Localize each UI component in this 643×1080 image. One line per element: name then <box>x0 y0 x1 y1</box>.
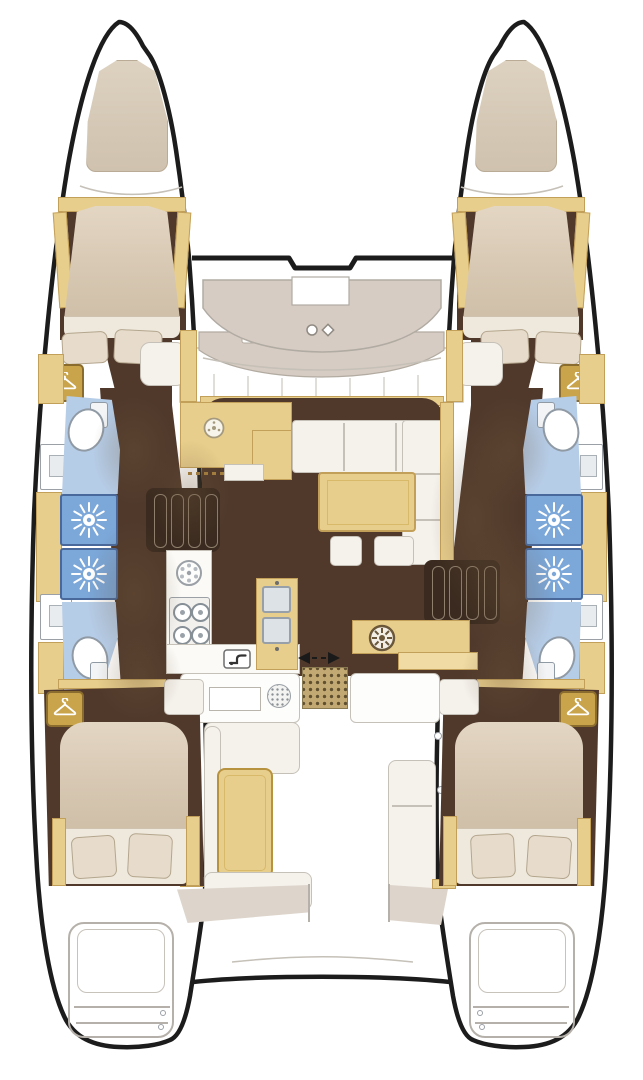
cockpit-counter-starboard <box>350 673 440 723</box>
stern-fitting <box>477 1010 483 1016</box>
faucet-icon <box>223 649 251 670</box>
step <box>466 566 479 620</box>
wardrobe-locker <box>559 691 597 727</box>
cushion-divider <box>343 423 345 471</box>
cockpit-grating <box>302 667 348 709</box>
stern-fitting <box>158 1024 164 1030</box>
forepeak-cushion-starboard <box>475 60 557 172</box>
shower-jets-icon <box>534 500 574 540</box>
aft-bench-starboard <box>390 885 448 925</box>
stern-line <box>308 884 310 922</box>
hull-cabinet <box>581 492 607 602</box>
hinge-fitting <box>434 732 442 740</box>
toilet <box>533 402 575 452</box>
stove-burner-icon <box>173 626 192 645</box>
sink-basin <box>262 617 291 644</box>
ottoman <box>374 536 414 566</box>
shower-stall <box>60 494 118 546</box>
swim-step <box>478 929 566 993</box>
table-inner-line <box>224 775 266 871</box>
ottoman <box>330 536 362 566</box>
companionway-steps-port <box>146 488 220 552</box>
shower-jets-icon <box>69 500 109 540</box>
clothes-hanger-icon <box>565 698 591 720</box>
swim-step-line <box>475 1022 567 1024</box>
stern-fitting <box>479 1024 485 1030</box>
step <box>205 494 218 548</box>
cockpit-table <box>217 768 273 878</box>
side-deck-pod <box>457 342 503 386</box>
aft-cabin-vanity <box>439 679 479 715</box>
pillow <box>470 833 516 879</box>
wet-bar-shelf <box>398 652 478 670</box>
hull-cabinet <box>38 354 64 404</box>
bed-rail <box>577 818 591 886</box>
shower-jets-icon <box>69 554 109 594</box>
bed-rail <box>52 818 66 886</box>
pillow <box>534 331 582 365</box>
swim-step-line <box>76 1022 168 1024</box>
toilet <box>68 402 110 452</box>
step <box>154 494 167 548</box>
galley-step <box>224 464 264 481</box>
wardrobe-locker <box>46 691 84 727</box>
swim-step-line <box>473 1006 569 1008</box>
pillow <box>61 331 109 365</box>
drawer-front <box>209 687 261 711</box>
forepeak-cushion-port <box>86 60 168 172</box>
table-inner-line <box>327 480 409 525</box>
aft-double-bed-port <box>60 722 188 830</box>
catamaran-floorplan <box>0 0 643 1080</box>
speaker-grille <box>267 684 291 708</box>
pillow <box>127 833 173 879</box>
stove-burner-icon <box>191 626 210 645</box>
round-sink-icon <box>203 417 225 439</box>
step <box>171 494 184 548</box>
hull-cabinet <box>36 492 62 602</box>
window-pillar <box>446 330 463 402</box>
sliding-door-arrows-icon <box>298 652 310 664</box>
window-pillar <box>180 330 197 402</box>
anchor-locker <box>292 277 349 305</box>
stove-burner-icon <box>191 603 210 622</box>
basin <box>580 605 597 627</box>
step <box>484 566 497 620</box>
aft-double-bed-starboard <box>455 722 583 830</box>
faucet-dot <box>275 581 279 585</box>
stern-fitting <box>160 1010 166 1016</box>
round-sink-icon <box>367 623 397 653</box>
shower-jets-icon <box>534 554 574 594</box>
stove-burner-icon <box>173 603 192 622</box>
step <box>188 494 201 548</box>
step <box>432 566 445 620</box>
shower-stall <box>525 494 583 546</box>
stove <box>169 597 210 647</box>
shower-stall <box>60 548 118 600</box>
v-berth-port <box>64 206 180 320</box>
sofa-back-trim <box>440 402 454 564</box>
wet-bar <box>352 620 470 654</box>
door-track-dash <box>312 657 317 660</box>
faucet-dot <box>275 647 279 651</box>
aft-cabin-vanity <box>164 679 204 715</box>
shower-stall <box>525 548 583 600</box>
sink-basin <box>262 586 291 613</box>
salon-table <box>318 472 416 532</box>
door-track-dash <box>321 657 326 660</box>
round-sink-icon <box>175 559 203 587</box>
front-crossbeam <box>192 258 452 268</box>
sliding-door-arrows-icon <box>328 652 340 664</box>
step <box>449 566 462 620</box>
clothes-hanger-icon <box>52 698 78 720</box>
bed-rail <box>186 816 200 886</box>
sliding-door-arrows <box>298 650 346 666</box>
stern-line <box>388 884 390 922</box>
basin <box>580 455 597 477</box>
module-line <box>392 805 432 807</box>
aft-deck-edge <box>193 977 450 982</box>
pillow <box>71 835 118 880</box>
double-sink-unit <box>256 578 298 670</box>
v-berth-starboard <box>463 206 579 320</box>
hull-cabinet <box>579 354 605 404</box>
swim-step <box>77 929 165 993</box>
swim-step-line <box>74 1006 170 1008</box>
cushion-divider <box>395 423 397 471</box>
stern-center-line <box>232 957 413 962</box>
pillow <box>526 835 573 880</box>
companionway-steps-starboard <box>424 560 500 624</box>
windlass-icon <box>307 325 317 335</box>
bed-rail <box>443 816 457 886</box>
